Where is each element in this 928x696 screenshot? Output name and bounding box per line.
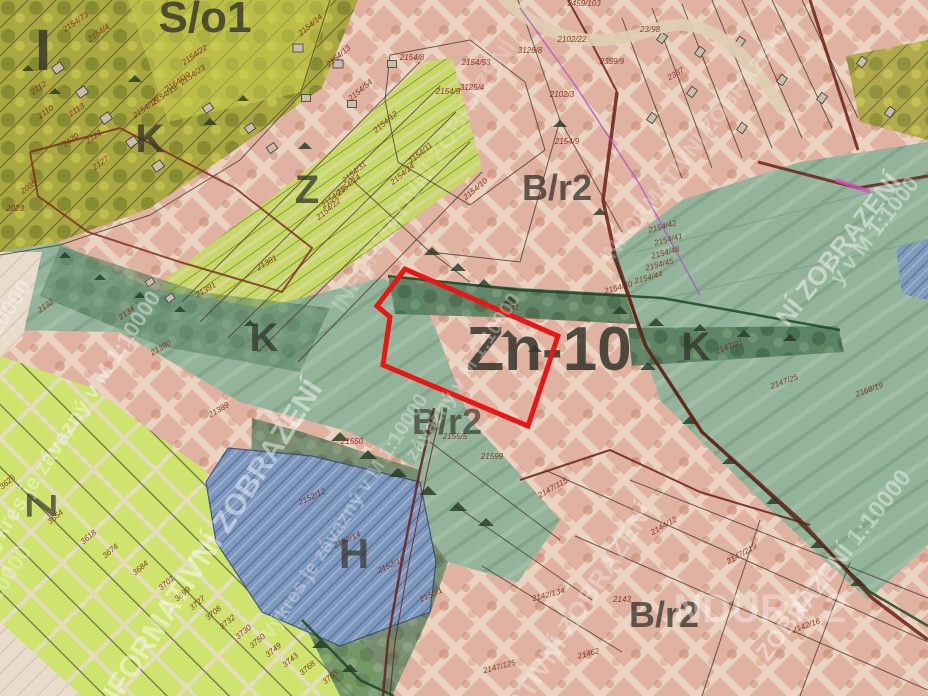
parcel-number: 21599 (480, 452, 504, 461)
parcel-number: 21550 (340, 437, 364, 446)
map-watermark: NDURY 2 (673, 587, 846, 631)
zone-label-k: K (250, 316, 279, 360)
parcel-number: 3126/8 (518, 46, 543, 55)
parcel-number: 2023 (5, 204, 24, 213)
zone-label-k: K (682, 325, 711, 369)
building-footprint (388, 61, 397, 68)
building-footprint (302, 95, 311, 102)
parcel-number: 23/98 (639, 25, 661, 34)
parcel-number: 2154/9 (554, 137, 580, 146)
map-canvas[interactable]: 211221102113212021232127203520232154/732… (0, 0, 928, 696)
parcel-number: 2154/8 (399, 53, 425, 62)
zone-label-k: K (136, 117, 165, 161)
parcel-number: 2359/9 (599, 57, 625, 66)
parcel-number: 2154/9 (435, 87, 461, 96)
building-footprint (293, 44, 303, 52)
parcel-number: 2102/3 (549, 90, 575, 99)
zone-label-br2: B/r2 (522, 167, 592, 208)
zone-label-z: Z (295, 168, 319, 212)
parcel-number: 2102/22 (557, 35, 587, 44)
zone-label-so1: S/o1 (159, 0, 252, 42)
map-viewport[interactable]: 211221102113212021232127203520232154/732… (0, 0, 928, 696)
zone-label-i: I (35, 18, 51, 83)
parcel-number: 2459/103 (566, 0, 601, 8)
